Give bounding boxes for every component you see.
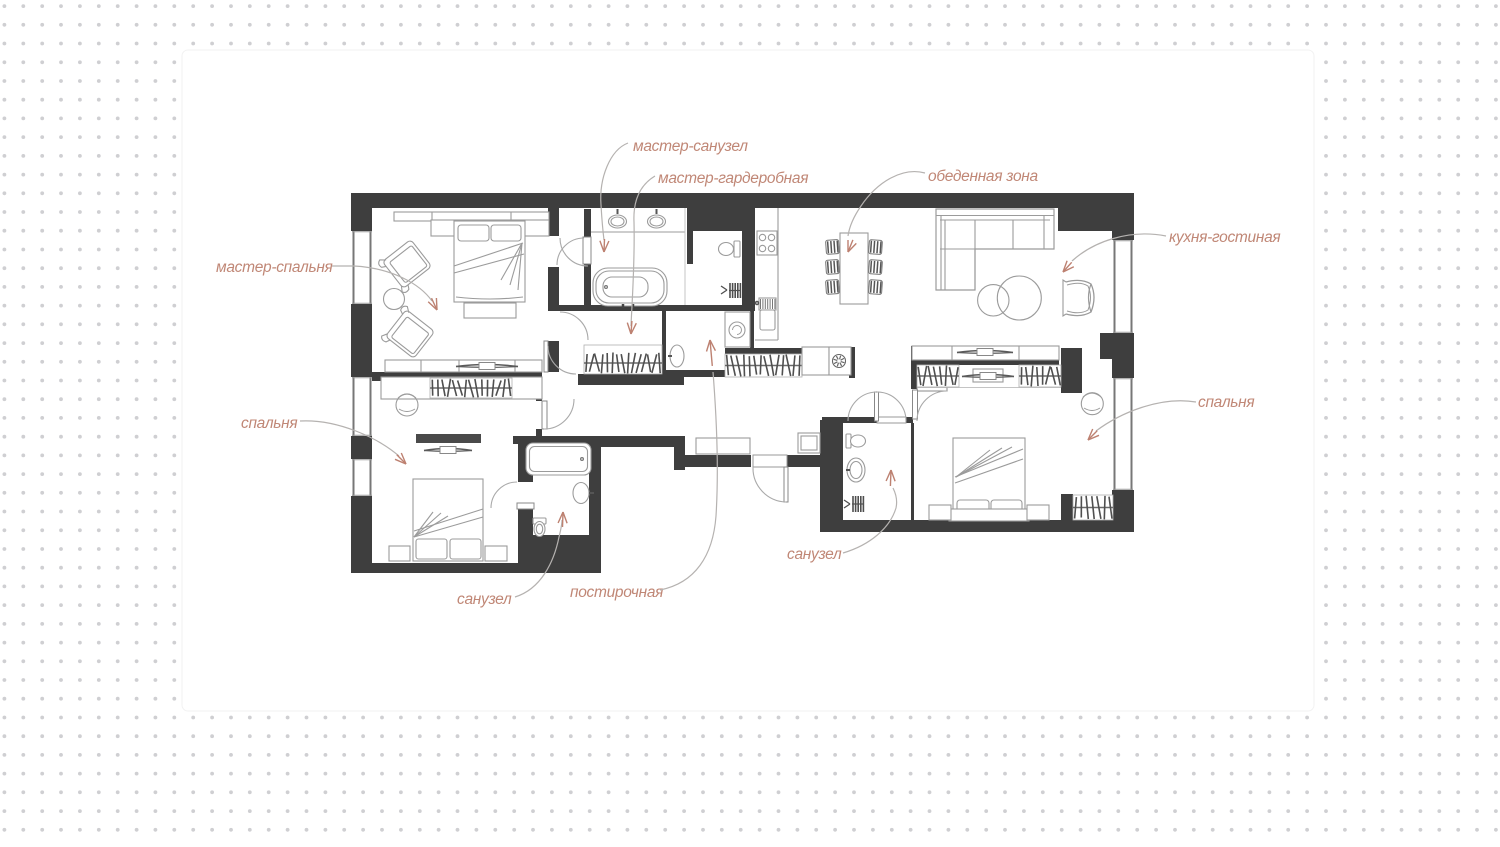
svg-text:спальня: спальня (241, 415, 297, 432)
svg-text:санузел: санузел (787, 546, 842, 563)
svg-text:спальня: спальня (1198, 394, 1254, 411)
svg-text:постирочная: постирочная (570, 584, 663, 601)
svg-text:кухня-гостиная: кухня-гостиная (1169, 229, 1280, 246)
svg-text:обеденная зона: обеденная зона (928, 168, 1039, 185)
svg-text:мастер-спальня: мастер-спальня (216, 259, 333, 276)
svg-text:мастер-санузел: мастер-санузел (633, 138, 748, 155)
svg-text:мастер-гардеробная: мастер-гардеробная (658, 170, 808, 187)
svg-text:санузел: санузел (457, 591, 512, 608)
